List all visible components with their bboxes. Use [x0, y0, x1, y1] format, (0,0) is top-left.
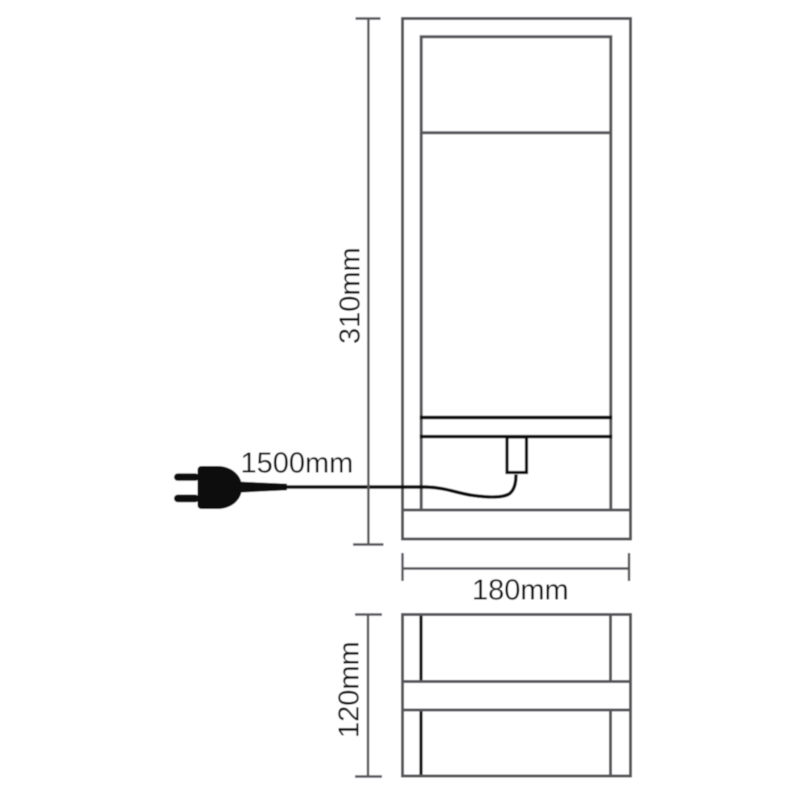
svg-text:310mm: 310mm — [335, 247, 367, 344]
svg-text:120mm: 120mm — [334, 641, 366, 738]
svg-text:180mm: 180mm — [472, 575, 569, 607]
svg-text:1500mm: 1500mm — [241, 448, 354, 480]
